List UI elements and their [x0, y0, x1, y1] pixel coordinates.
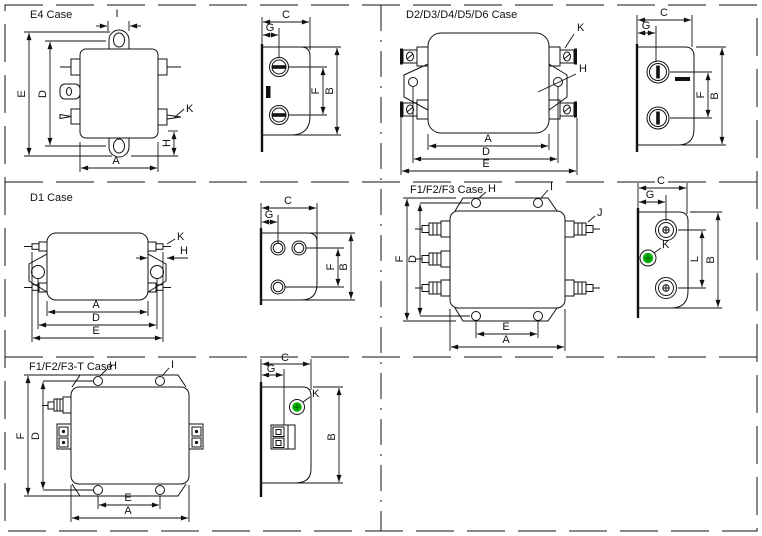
- d2end-screw-bottom-slot: [656, 112, 660, 125]
- d2-mounting-hole-right: [554, 78, 563, 87]
- f1t-block-right-dot2: [195, 441, 198, 444]
- d2-d6-side-view: K H A D E: [400, 22, 587, 175]
- f1t-dim-E: E: [124, 492, 131, 504]
- e4-end-view: C G F B: [262, 9, 341, 152]
- f1-dim-A: A: [502, 334, 510, 346]
- f1-stud-l1-tip: [422, 226, 429, 233]
- d1end-dim-F: F: [325, 263, 337, 270]
- f1end-dim-L: L: [689, 256, 701, 262]
- f1t-body: [71, 387, 189, 484]
- d2-body: [428, 33, 549, 133]
- f1-stud-l2-nut: [429, 253, 441, 265]
- e4-terminal-right-bottom: [158, 109, 167, 125]
- f1-f3-panel: F1/F2/F3 Case H I: [394, 175, 722, 351]
- d1-body: [47, 233, 148, 300]
- e4end-screw-top-slot: [272, 65, 286, 69]
- f1-stud-r1-tip: [586, 226, 593, 233]
- e4-label-K: K: [186, 103, 194, 115]
- f1-stud-r2-nut: [574, 282, 586, 294]
- e4-dim-D: D: [37, 90, 49, 98]
- f1t-hole-bottom-right: [156, 486, 165, 495]
- f1end-leader-K: [654, 248, 661, 253]
- f1-stud-right-1: [565, 221, 600, 237]
- f1end-dim-C: C: [657, 175, 665, 187]
- f1t-block-left-dot2: [62, 441, 65, 444]
- f1-stud-r1-nut: [574, 223, 586, 235]
- e4-panel: E4 Case K E D: [16, 8, 341, 172]
- d1-pin-bottom-left: [24, 283, 47, 292]
- d1-dim-H: H: [180, 245, 188, 257]
- e4-dim-E: E: [16, 90, 28, 97]
- d2-terminal-bottom-right: [549, 100, 577, 119]
- d1-mounting-hole-left: [32, 266, 45, 279]
- e4-pin-right-bottom: [167, 115, 181, 119]
- d1-pin-tr-nut: [156, 244, 163, 250]
- f1-stud-l1-nut: [429, 223, 441, 235]
- d1end-dim-C: C: [284, 195, 292, 207]
- d2end-marking-bar: [675, 77, 690, 81]
- f1tend-block-screw1: [276, 430, 281, 435]
- f1t-side-view: H I: [15, 359, 203, 522]
- d1end-plate: [261, 233, 317, 300]
- d2-term-tr-cap: [574, 49, 577, 65]
- e4end-marking-bar: [266, 86, 271, 98]
- f1tend-label-K: K: [312, 388, 320, 400]
- e4-faston-hole: [67, 88, 72, 96]
- f1-stud-r2-base: [565, 280, 574, 296]
- f1t-stud-tip: [48, 402, 54, 409]
- e4end-dim-G: G: [266, 22, 275, 34]
- d2-d6-end-view: C G F B: [637, 7, 726, 152]
- e4end-dim-F: F: [310, 87, 322, 94]
- f1-stud-l1-base: [441, 221, 450, 237]
- f1t-stud-left: [42, 397, 71, 413]
- f1end-ground-terminal: [640, 250, 656, 266]
- d2-term-tl-cap: [400, 49, 403, 65]
- f1-f3-side-view: H I: [394, 181, 603, 351]
- e4end-dim-C: C: [282, 9, 290, 21]
- f1-stud-l3-nut: [429, 282, 441, 294]
- f1t-dim-D: D: [30, 432, 42, 440]
- d1-pin-tr-base: [148, 242, 156, 251]
- d2-leader-K: [565, 34, 574, 48]
- d1-pin-tl-nut: [32, 244, 39, 250]
- e4-side-view: K E D A H I: [16, 8, 194, 172]
- f1t-terminal-block-left: [57, 424, 71, 449]
- d2-term-bl-slot: [407, 107, 413, 112]
- e4end-dim-B: B: [324, 87, 336, 94]
- d1-pin-tl-base: [39, 242, 47, 251]
- e4-terminal-right-top: [158, 59, 167, 75]
- e4-terminal-left-top: [71, 59, 80, 75]
- f1t-stud-nut: [54, 399, 63, 411]
- d2end-dim-C: C: [660, 7, 668, 19]
- f1-leader-J: [588, 216, 595, 222]
- f1tend-block-cell2: [273, 438, 284, 448]
- d2-term-bl-cap: [400, 102, 403, 118]
- d1-leader-K: [167, 239, 175, 244]
- d1-title: D1 Case: [30, 192, 73, 204]
- d1end-hole-bottom-inner: [273, 282, 283, 292]
- d2end-dim-F: F: [695, 91, 707, 98]
- d2-dim-A: A: [484, 133, 492, 145]
- f1-stud-r1-base: [565, 221, 574, 237]
- f1-hole-bottom-right: [534, 312, 543, 321]
- f1t-end-view: C G K B: [261, 352, 343, 497]
- f1end-terminal-top: [656, 220, 677, 241]
- d2-d6-panel: D2/D3/D4/D5/D6 Case: [400, 7, 726, 175]
- d1end-hole-top-right-inner: [294, 243, 304, 253]
- d1-mounting-hole-right: [151, 266, 164, 279]
- f1end-terminal-bottom: [656, 278, 677, 299]
- f1t-dim-A: A: [124, 505, 132, 517]
- f1-hole-top-left: [472, 199, 481, 208]
- f1-stud-r2-tip: [586, 285, 593, 292]
- f1tend-block-cell1: [273, 427, 284, 437]
- f1-f3-t-panel: F1/F2/F3-T Case H I: [15, 352, 343, 522]
- f1-hole-bottom-left: [472, 312, 481, 321]
- f1-stud-right-2: [565, 280, 600, 296]
- f1-label-I: I: [550, 181, 553, 193]
- e4-title: E4 Case: [30, 9, 72, 21]
- f1-label-H: H: [488, 183, 496, 195]
- e4-dim-I: I: [115, 8, 118, 20]
- d2-label-K: K: [577, 22, 585, 34]
- d2-terminal-top-left: [400, 47, 428, 66]
- d2-term-br-slot: [564, 107, 570, 112]
- f1-stud-l3-base: [441, 280, 450, 296]
- f1tend-dim-B: B: [326, 433, 338, 440]
- f1-body: [450, 211, 565, 308]
- d2-d6-title: D2/D3/D4/D5/D6 Case: [406, 9, 517, 21]
- d2-term-br-cap: [574, 102, 577, 118]
- e4-faston-tab: [60, 84, 80, 99]
- d1-end-view: C G F B: [261, 195, 355, 305]
- d1-side-view: K H A D E: [24, 231, 188, 342]
- f1-hole-top-right: [534, 199, 543, 208]
- d2-label-H: H: [579, 63, 587, 75]
- f1-label-J: J: [597, 207, 603, 219]
- d1-dim-D: D: [92, 312, 100, 324]
- d1-label-K: K: [177, 231, 185, 243]
- e4-terminal-left-bottom: [71, 109, 80, 124]
- d1-pin-bottom-right: [148, 283, 171, 292]
- e4-pin-left-bottom: [60, 115, 71, 119]
- outline-drawings-svg: E4 Case K E D: [0, 0, 762, 536]
- f1-dim-D: D: [407, 255, 419, 263]
- d2end-plate: [637, 47, 694, 145]
- f1-stud-l2-base: [441, 251, 450, 267]
- f1t-stud-base: [63, 397, 71, 413]
- d2-term-tl-slot: [407, 54, 413, 59]
- f1tend-ground-terminal: [290, 400, 305, 415]
- d2end-screw-top-slot: [656, 66, 660, 79]
- f1t-title: F1/F2/F3-T Case: [29, 361, 113, 373]
- f1-stud-l3-tip: [422, 285, 429, 292]
- f1-f3-end-view: C G K: [638, 175, 722, 318]
- f1-dim-E: E: [502, 321, 509, 333]
- d1end-hole-top-left-inner: [273, 243, 283, 253]
- drawing-sheet: E4 Case K E D: [0, 0, 762, 536]
- e4end-screw-bottom-slot: [272, 113, 286, 117]
- f1tend-dim-G: G: [267, 363, 276, 375]
- f1t-hole-top-right: [156, 377, 165, 386]
- d2-dim-E: E: [482, 158, 489, 170]
- f1t-hole-bottom-left: [94, 486, 103, 495]
- f1t-block-left-dot1: [62, 430, 65, 433]
- panel-borders: [5, 5, 757, 531]
- d2-term-tl-base: [417, 47, 428, 66]
- f1end-label-K: K: [662, 239, 670, 251]
- f1t-terminal-block-right: [189, 424, 203, 449]
- f1t-hole-top-left: [94, 377, 103, 386]
- f1end-dim-B: B: [705, 256, 717, 263]
- d1end-dim-G: G: [265, 209, 274, 221]
- d1-dim-A: A: [92, 299, 100, 311]
- e4-bottom-mounting-hole: [114, 139, 125, 153]
- d2-term-tr-base: [549, 47, 560, 66]
- f1end-dim-G: G: [646, 189, 655, 201]
- d2-term-tr-slot: [564, 54, 570, 59]
- d2-terminal-top-right: [549, 47, 577, 66]
- f1-leader-I: [541, 190, 548, 198]
- e4-top-mounting-hole: [114, 33, 125, 47]
- f1-stud-l2-tip: [422, 256, 429, 263]
- f1-f3-title: F1/F2/F3 Case: [410, 184, 483, 196]
- d1-dim-E: E: [92, 325, 99, 337]
- f1-dim-F: F: [394, 255, 406, 262]
- d1end-dim-B: B: [338, 263, 350, 270]
- f1t-label-I: I: [171, 359, 174, 371]
- f1tend-dim-C: C: [281, 352, 289, 364]
- e4-dim-H: H: [161, 139, 173, 147]
- d2-leader-H: [538, 74, 576, 92]
- d2end-dim-B: B: [709, 92, 721, 99]
- f1t-block-right-dot1: [195, 430, 198, 433]
- d1-pin-top-left: [24, 242, 47, 251]
- e4-body: [80, 49, 158, 138]
- f1t-label-H: H: [109, 360, 117, 372]
- d1-panel: D1 Case: [24, 192, 355, 342]
- f1tend-block-screw2: [276, 441, 281, 446]
- f1tend-terminal-block: [271, 425, 295, 449]
- d2end-dim-G: G: [642, 20, 651, 32]
- f1t-dim-F: F: [15, 432, 27, 439]
- f1tend-leader-K: [303, 397, 310, 402]
- d2-dim-D: D: [482, 146, 490, 158]
- e4-dim-A: A: [112, 155, 120, 167]
- d2-mounting-hole-left: [409, 78, 418, 87]
